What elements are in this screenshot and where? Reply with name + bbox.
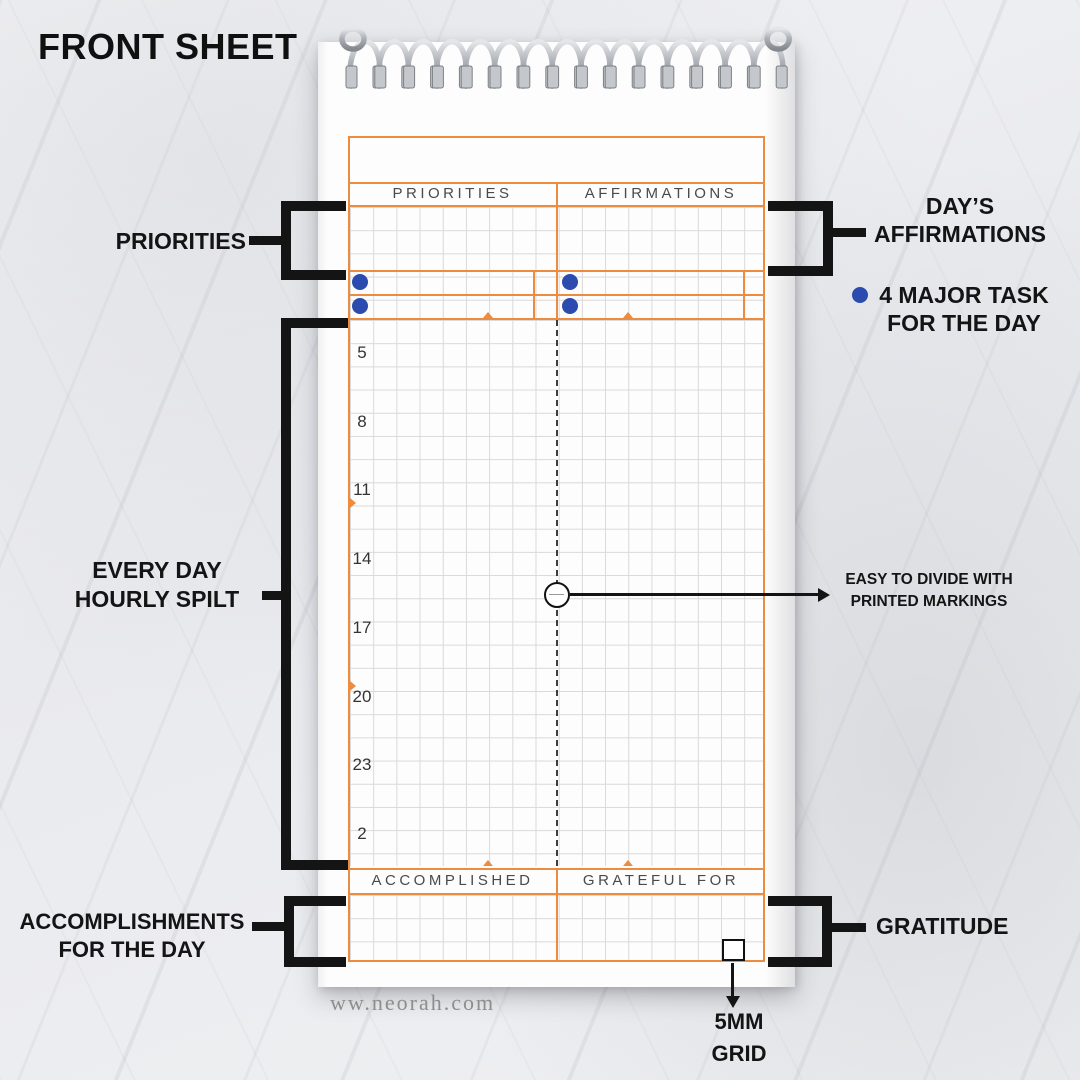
annotation-line: EASY TO DIVIDE WITH (823, 569, 1035, 591)
annotation-line: FOR THE DAY (875, 309, 1053, 337)
grid-cell-marker (722, 939, 745, 961)
frame-line (763, 136, 765, 962)
hour-label: 5 (350, 341, 374, 365)
bracket (281, 318, 291, 870)
bracket (281, 201, 291, 280)
annotation-line: EVERY DAY (52, 556, 262, 585)
marble-background: FRONT SHEET PRIORITIES AFFIRMATIONS ACCO… (0, 0, 1080, 1080)
annotation-line: FOR THE DAY (16, 936, 248, 964)
bracket (823, 201, 833, 276)
annotation-line: AFFIRMATIONS (866, 220, 1054, 248)
bracket-connector (833, 228, 866, 237)
annotation-line: 4 MAJOR TASK (875, 281, 1053, 309)
annotation-hourly-split: EVERY DAY HOURLY SPILT (52, 556, 262, 614)
annotation-accomplishments: ACCOMPLISHMENTS FOR THE DAY (16, 908, 248, 964)
bracket (768, 957, 832, 967)
bullet-dot-icon (852, 287, 868, 303)
hour-label: 8 (350, 410, 374, 434)
sheet-header-grateful: GRATEFUL FOR (557, 868, 765, 893)
annotation-line: ACCOMPLISHMENTS (16, 908, 248, 936)
bracket (768, 266, 833, 276)
task-subcolumn-line (533, 270, 535, 318)
bracket-connector (252, 922, 284, 931)
grid-arrow-line (731, 963, 734, 998)
annotation-affirmations: DAY’S AFFIRMATIONS (866, 192, 1054, 248)
annotation-easy-divide: EASY TO DIVIDE WITH PRINTED MARKINGS (823, 569, 1035, 613)
task-dot (562, 298, 578, 314)
printed-marking-icon (483, 312, 493, 318)
bracket-connector (262, 591, 281, 600)
sheet-header-affirmations: AFFIRMATIONS (557, 182, 765, 205)
printed-marking-icon (623, 312, 633, 318)
bracket (281, 318, 348, 328)
task-dot (352, 274, 368, 290)
annotation-major-task: 4 MAJOR TASK FOR THE DAY (875, 281, 1053, 337)
task-dot (562, 274, 578, 290)
watermark-url: ww.neorah.com (330, 990, 495, 1016)
hour-label: 14 (350, 547, 374, 571)
annotation-line: PRINTED MARKINGS (823, 591, 1035, 613)
bracket-connector (249, 236, 281, 245)
page-title: FRONT SHEET (38, 26, 298, 68)
bracket (281, 270, 346, 280)
hour-label: 23 (350, 753, 374, 777)
bracket (768, 896, 832, 906)
frame-line (348, 136, 765, 138)
task-dot (352, 298, 368, 314)
spiral-binding (325, 0, 795, 100)
annotation-line: HOURLY SPILT (52, 585, 262, 614)
bracket (281, 860, 348, 870)
hour-label: 17 (350, 616, 374, 640)
hour-label: 2 (350, 822, 374, 846)
bracket (284, 896, 346, 906)
hour-label: 11 (350, 478, 374, 502)
hour-label: 20 (350, 685, 374, 709)
annotation-line: GRID (679, 1038, 799, 1070)
bracket-connector (832, 923, 866, 932)
bracket (768, 201, 833, 211)
annotation-5mm-grid: 5MM GRID (679, 1006, 799, 1070)
divider-circle-marker (544, 582, 570, 608)
annotation-line: DAY’S (866, 192, 1054, 220)
divide-arrow-line (570, 593, 820, 596)
task-subcolumn-line (743, 270, 745, 318)
printed-marking-icon (623, 860, 633, 866)
annotation-line: 5MM (679, 1006, 799, 1038)
bracket (284, 957, 346, 967)
printed-marking-icon (483, 860, 493, 866)
annotation-gratitude: GRATITUDE (876, 913, 1008, 940)
sheet-header-accomplished: ACCOMPLISHED (348, 868, 557, 893)
sheet-header-priorities: PRIORITIES (348, 182, 557, 205)
bracket (281, 201, 346, 211)
annotation-priorities: PRIORITIES (36, 228, 246, 255)
